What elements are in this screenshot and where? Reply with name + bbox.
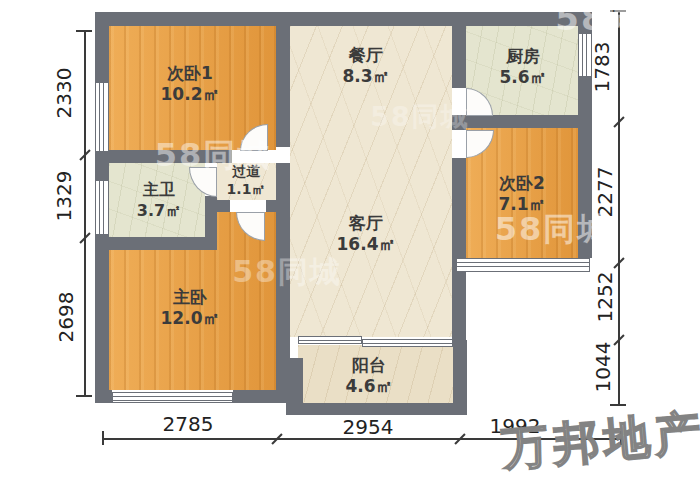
dimension-label: 1252 [593, 272, 617, 323]
dimension-label: 2277 [593, 167, 617, 218]
wall-segment [276, 26, 290, 147]
dimension-cap [76, 395, 92, 397]
sliding-door-marker [298, 336, 362, 344]
room-label-master-bedroom: 主卧 12.0㎡ [161, 287, 220, 329]
window-marker [95, 180, 109, 235]
dimension-label: 1992 [490, 414, 541, 438]
wall-segment [266, 200, 290, 212]
window-marker [112, 392, 233, 403]
dimension-cap [76, 30, 92, 32]
wall-segment [276, 163, 290, 390]
room-area: 7.1㎡ [498, 194, 545, 214]
dimension-label: 2954 [343, 415, 394, 439]
room-label-balcony: 阳台 4.6㎡ [345, 355, 392, 397]
dimension-cap [610, 10, 626, 12]
room-area: 1.1㎡ [227, 181, 266, 197]
dimension-label: 2785 [163, 412, 214, 436]
sliding-door-marker [362, 339, 453, 347]
window-marker [95, 82, 109, 152]
wall-segment [205, 200, 230, 212]
room-label-hallway: 过道 1.1㎡ [227, 162, 266, 198]
wall-segment [95, 237, 217, 250]
wall-segment [452, 26, 466, 88]
room-label-bedroom1: 次卧1 10.2㎡ [161, 63, 220, 105]
room-label-living: 客厅 16.4㎡ [337, 213, 396, 255]
wall-segment [95, 150, 232, 163]
room-area: 10.2㎡ [161, 84, 220, 104]
dimension-line-left [84, 31, 86, 397]
room-area: 4.6㎡ [345, 376, 392, 396]
room-area: 16.4㎡ [337, 234, 396, 254]
dimension-label: 1044 [591, 342, 615, 393]
floor-plan: 次卧1 10.2㎡ 餐厅 8.3㎡ 厨房 5.6㎡ 主卫 3.7㎡ 过道 1.1… [0, 0, 700, 480]
wall-segment [95, 390, 112, 403]
room-name: 阳台 [352, 355, 386, 375]
room-name: 餐厅 [349, 45, 383, 65]
dimension-line-right [618, 11, 620, 405]
dimension-cap [610, 404, 626, 406]
dimension-label: 2698 [54, 292, 78, 343]
room-label-dining: 餐厅 8.3㎡ [342, 45, 389, 87]
dimension-cap [102, 431, 104, 445]
wall-segment [286, 358, 303, 415]
room-name: 主卧 [173, 287, 207, 307]
room-label-master-bath: 主卫 3.7㎡ [137, 179, 181, 221]
room-name: 次卧2 [499, 173, 545, 193]
wall-segment [452, 158, 466, 340]
room-area: 5.6㎡ [499, 67, 546, 87]
wall-segment [233, 390, 290, 403]
room-name: 客厅 [349, 213, 383, 233]
wall-segment [452, 115, 592, 128]
dimension-cap [620, 431, 622, 445]
window-marker [456, 258, 590, 272]
room-name: 过道 [232, 163, 260, 179]
room-name: 厨房 [506, 46, 540, 66]
room-area: 8.3㎡ [342, 66, 389, 86]
dimension-label: 1329 [52, 171, 76, 222]
wall-segment [286, 403, 467, 415]
dimension-label: 2330 [52, 68, 76, 119]
room-area: 3.7㎡ [137, 201, 181, 220]
room-name: 次卧1 [167, 63, 213, 83]
room-area: 12.0㎡ [161, 308, 220, 328]
dimension-label: 1783 [590, 42, 614, 93]
wall-segment [95, 12, 592, 26]
room-label-bedroom2: 次卧2 7.1㎡ [498, 173, 545, 215]
room-label-kitchen: 厨房 5.6㎡ [499, 46, 546, 88]
room-name: 主卫 [143, 180, 175, 199]
